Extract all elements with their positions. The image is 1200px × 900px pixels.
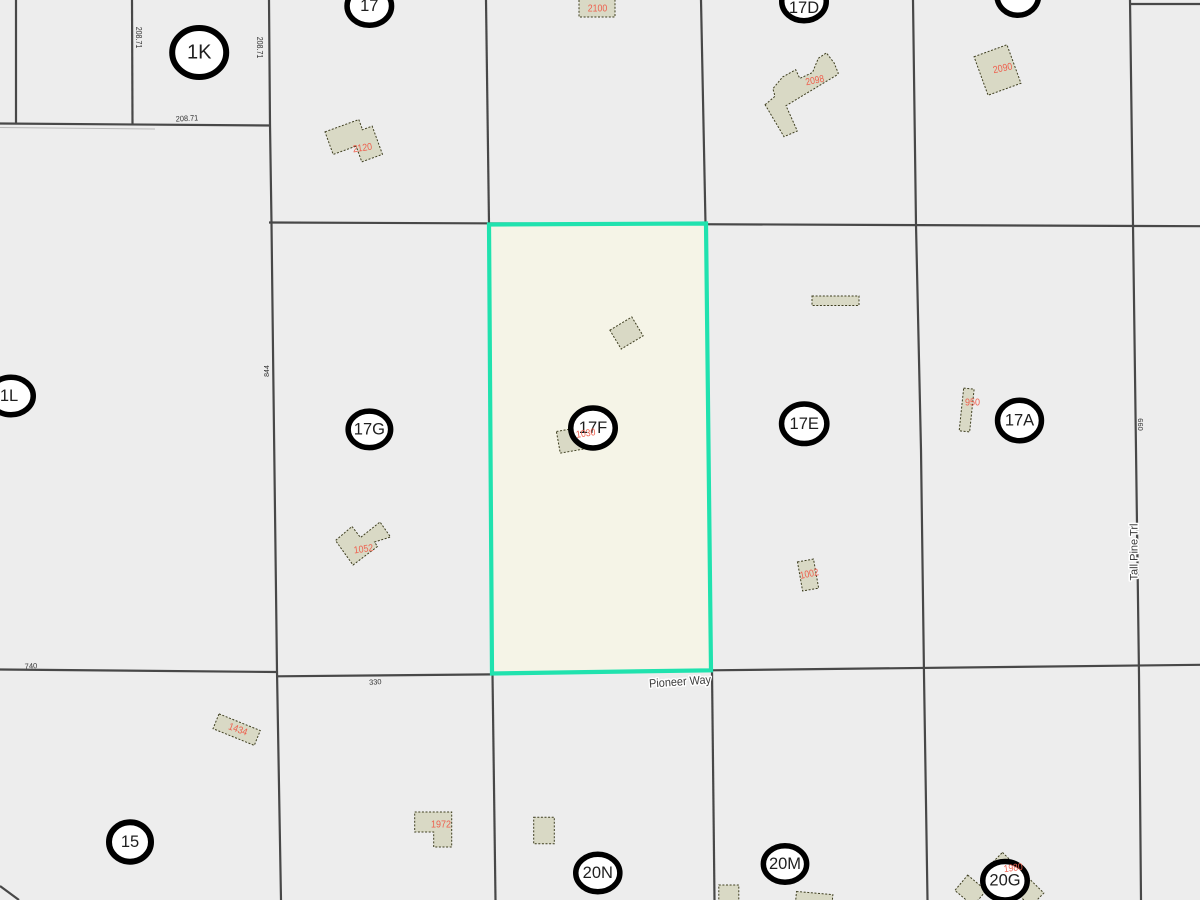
svg-text:950: 950: [965, 398, 980, 409]
svg-text:Tall Pine Trl: Tall Pine Trl: [1129, 524, 1141, 581]
svg-text:099: 099: [1136, 418, 1145, 431]
svg-text:20N: 20N: [583, 864, 613, 882]
svg-text:17E: 17E: [790, 415, 819, 433]
svg-text:208.71: 208.71: [176, 113, 199, 123]
svg-text:17D: 17D: [789, 0, 819, 17]
svg-text:208.71: 208.71: [134, 27, 143, 49]
svg-text:1L: 1L: [0, 387, 18, 405]
svg-text:17A: 17A: [1005, 412, 1034, 430]
svg-text:17: 17: [360, 0, 378, 15]
svg-text:1K: 1K: [187, 42, 212, 64]
svg-text:208.71: 208.71: [255, 37, 264, 59]
svg-text:1972: 1972: [431, 820, 451, 831]
svg-text:15: 15: [121, 833, 139, 851]
svg-text:20M: 20M: [769, 855, 801, 873]
svg-text:330: 330: [369, 677, 382, 687]
svg-text:740: 740: [24, 661, 37, 671]
svg-text:2100: 2100: [588, 3, 608, 14]
svg-text:844: 844: [264, 365, 271, 377]
svg-text:17G: 17G: [354, 420, 385, 438]
